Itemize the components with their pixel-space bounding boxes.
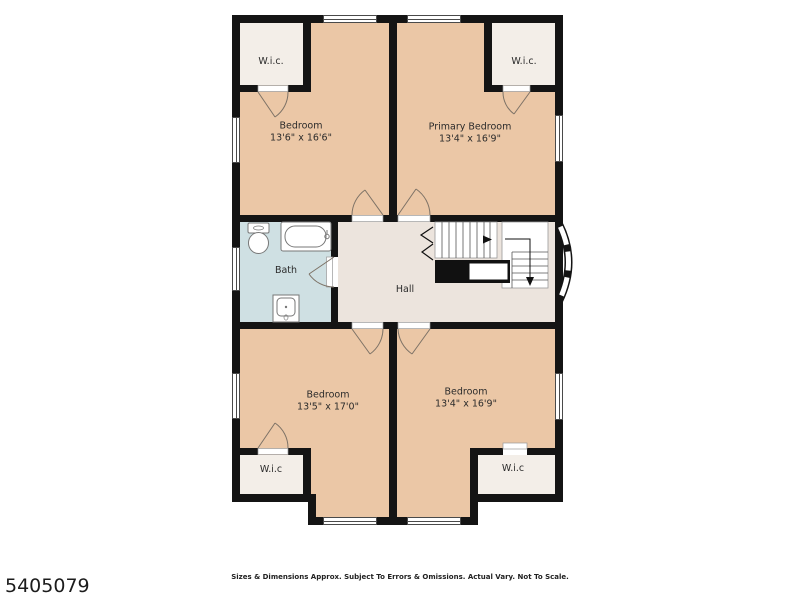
door-leaf <box>352 216 383 222</box>
disclaimer-text: Sizes & Dimensions Approx. Subject To Er… <box>0 573 800 581</box>
room-dimensions: 13'4" x 16'9" <box>435 399 497 411</box>
room-name: Hall <box>396 284 414 295</box>
wall-segment <box>527 448 563 455</box>
window <box>232 117 240 163</box>
room-name: W.i.c <box>502 463 524 474</box>
door-leaf <box>352 323 383 329</box>
room-name: Bedroom <box>445 387 488 398</box>
wall-segment <box>383 215 398 222</box>
room-label-bedroom-top-left: Bedroom 13'6" x 16'6" <box>270 121 332 146</box>
wall-segment <box>240 215 352 222</box>
room-label-wic-top-right: W.i.c. <box>511 56 536 68</box>
room-name: W.i.c. <box>258 56 283 67</box>
room-wic-top-left <box>240 23 303 85</box>
room-name: Bedroom <box>280 121 323 132</box>
window <box>232 247 240 291</box>
wall-segment <box>331 287 338 322</box>
window <box>555 373 563 420</box>
wall-segment <box>240 85 258 92</box>
wall-segment <box>484 23 492 92</box>
room-label-wic-bottom-left: W.i.c <box>260 464 282 476</box>
room-dimensions: 13'4" x 16'9" <box>429 134 512 146</box>
wall-segment <box>470 494 563 502</box>
room-name: Bath <box>275 265 297 276</box>
floor-plan: W.i.c. W.i.c. Bedroom 13'6" x 16'6" Prim… <box>0 0 800 600</box>
window <box>555 115 563 162</box>
wall-segment <box>232 15 563 23</box>
wall-segment <box>530 85 555 92</box>
room-bedroom-bottom-left <box>316 494 389 517</box>
room-wic-top-right <box>492 23 555 85</box>
room-name: Primary Bedroom <box>429 122 512 133</box>
wall-segment <box>303 23 311 92</box>
wall-segment <box>331 222 338 257</box>
room-label-wic-top-left: W.i.c. <box>258 56 283 68</box>
window <box>323 517 377 525</box>
room-label-bedroom-bottom-right: Bedroom 13'4" x 16'9" <box>435 387 497 412</box>
window <box>323 15 377 23</box>
room-label-bedroom-bottom-left: Bedroom 13'5" x 17'0" <box>297 390 359 415</box>
window <box>232 373 240 419</box>
wall-segment <box>240 322 352 329</box>
wall-segment <box>555 23 563 502</box>
room-name: W.i.c. <box>511 56 536 67</box>
window <box>407 517 461 525</box>
wall-segment <box>383 322 398 329</box>
wall-segment <box>288 448 303 455</box>
room-bedroom-bottom-right <box>397 494 470 517</box>
wall-segment <box>492 85 503 92</box>
room-dimensions: 13'6" x 16'6" <box>270 133 332 145</box>
room-name: Bedroom <box>307 390 350 401</box>
room-label-hall: Hall <box>396 284 414 296</box>
wall-segment <box>288 85 303 92</box>
wall-segment <box>430 215 555 222</box>
wall-segment <box>303 448 311 502</box>
room-dimensions: 13'5" x 17'0" <box>297 402 359 414</box>
door-leaf <box>398 216 430 222</box>
wall-segment <box>240 448 258 455</box>
room-name: W.i.c <box>260 464 282 475</box>
wall-segment <box>389 329 397 517</box>
room-label-wic-bottom-right: W.i.c <box>502 463 524 475</box>
window <box>407 15 461 23</box>
door-leaf <box>398 323 430 329</box>
room-label-bath: Bath <box>275 265 297 277</box>
wall-segment <box>470 448 478 502</box>
room-hall <box>338 222 555 322</box>
wall-segment <box>430 322 555 329</box>
room-label-primary-bedroom: Primary Bedroom 13'4" x 16'9" <box>429 122 512 147</box>
wall-segment <box>389 23 397 215</box>
